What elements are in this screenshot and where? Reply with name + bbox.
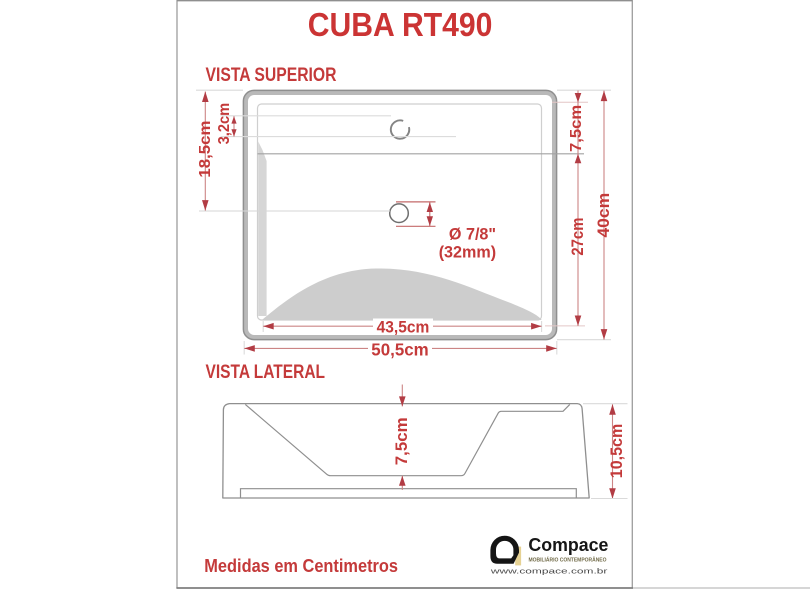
svg-text:50,5cm: 50,5cm bbox=[371, 340, 428, 360]
svg-text:(32mm): (32mm) bbox=[439, 243, 496, 262]
svg-text:MOBILIÁRIO CONTEMPORÂNEO: MOBILIÁRIO CONTEMPORÂNEO bbox=[529, 557, 607, 564]
svg-text:7,5cm: 7,5cm bbox=[568, 105, 585, 152]
svg-text:VISTA LATERAL: VISTA LATERAL bbox=[206, 362, 326, 383]
svg-text:Medidas em Centimetros: Medidas em Centimetros bbox=[204, 556, 398, 576]
svg-text:7,5cm: 7,5cm bbox=[392, 417, 411, 465]
svg-text:27cm: 27cm bbox=[569, 218, 587, 256]
svg-text:www.compace.com.br: www.compace.com.br bbox=[489, 568, 608, 575]
svg-text:40cm: 40cm bbox=[594, 193, 613, 238]
svg-text:CUBA RT490: CUBA RT490 bbox=[308, 6, 493, 43]
svg-text:10,5cm: 10,5cm bbox=[607, 424, 626, 478]
svg-text:Compace: Compace bbox=[528, 534, 608, 555]
svg-text:43,5cm: 43,5cm bbox=[377, 317, 430, 336]
svg-text:VISTA SUPERIOR: VISTA SUPERIOR bbox=[206, 65, 337, 86]
svg-text:3,2cm: 3,2cm bbox=[216, 103, 233, 145]
svg-text:Ø 7/8": Ø 7/8" bbox=[449, 224, 496, 243]
svg-text:18,5cm: 18,5cm bbox=[197, 121, 214, 178]
